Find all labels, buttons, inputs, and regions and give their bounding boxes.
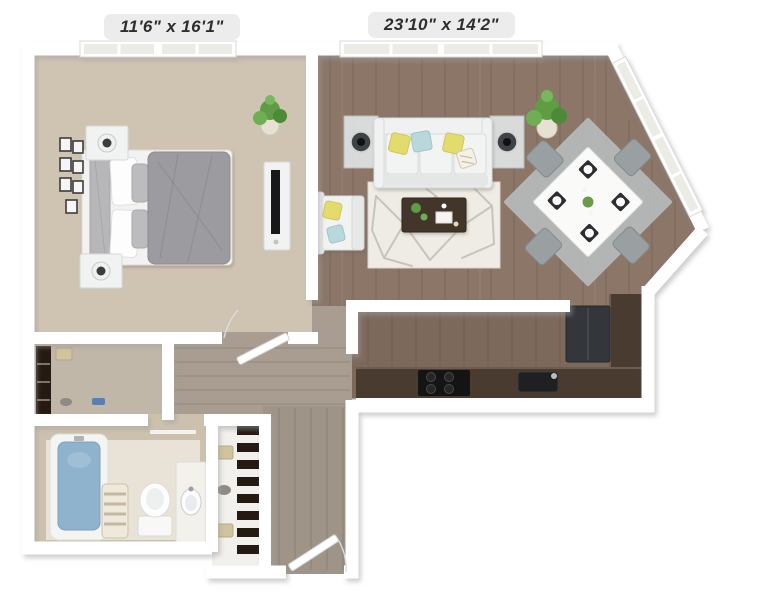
lamp-icon [103,139,112,148]
living-room-windows [340,41,542,57]
nightstand-top [86,126,128,160]
storage-basket [216,524,233,537]
closet-shelves [36,346,51,416]
lamp-icon [97,267,106,276]
walk-in-closet-floor [32,342,168,420]
nightstand-bottom [80,254,122,288]
armchair [312,192,364,254]
tv-icon [271,170,280,234]
toilet [138,483,172,536]
blue-pillow [411,130,433,152]
faucet-icon [74,436,84,441]
bedroom-dimensions-label: 11'6" x 16'1" [104,14,240,40]
tv-console [264,162,290,250]
faucet-icon [189,487,194,492]
bedroom-windows [80,41,236,57]
plant-icon [411,203,421,213]
side-table-right [490,116,524,168]
kitchen-sink [518,372,558,392]
counter-bottom [356,368,648,398]
floor-plan-drawing [0,0,760,592]
blue-item [92,398,105,405]
cooktop [418,370,470,396]
shower-curtain [102,484,128,538]
faucet-icon [551,373,557,379]
coffee-table [402,198,466,232]
yellow-pillow [322,201,342,221]
blue-pillow [326,224,345,243]
storage-basket [56,348,72,360]
bathtub [50,434,108,540]
tray-icon [436,212,452,223]
yellow-pillow [388,132,411,155]
vanity-sink [176,462,206,542]
storage-basket [216,446,233,459]
living-dining-dimensions-label: 23'10" x 14'2" [368,12,515,38]
bed [82,150,232,265]
floor-plan: 11'6" x 16'1" 23'10" x 14'2" [0,0,760,592]
side-table-left [344,116,378,168]
sofa [374,118,492,188]
